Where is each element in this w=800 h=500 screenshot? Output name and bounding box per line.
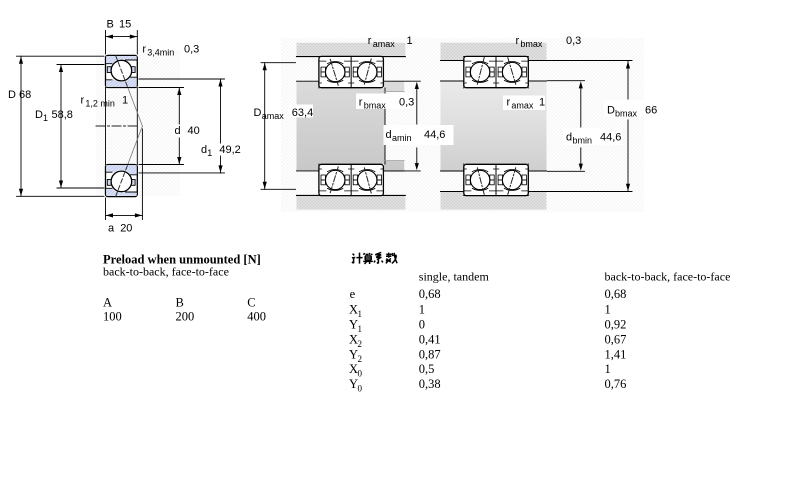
svg-text:amax: amax [373,39,396,49]
svg-text:r: r [368,35,372,47]
svg-text:58,8: 58,8 [52,109,73,121]
svg-text:D: D [35,109,43,121]
svg-text:0: 0 [358,369,363,379]
svg-text:63,4: 63,4 [292,107,313,119]
svg-text:bmin: bmin [573,136,593,146]
svg-text:0,3: 0,3 [399,97,414,109]
svg-text:C: C [247,296,255,310]
svg-text:r: r [516,35,520,47]
svg-text:1: 1 [207,148,212,158]
svg-text:r: r [507,97,511,109]
svg-text:a: a [108,223,115,235]
svg-text:1: 1 [539,97,545,109]
svg-text:3,4min: 3,4min [147,48,174,58]
svg-text:0: 0 [358,384,363,394]
svg-text:d: d [386,129,392,141]
svg-text:1,41: 1,41 [605,348,627,362]
svg-text:2: 2 [358,339,363,349]
svg-text:0,92: 0,92 [605,318,627,332]
svg-text:1: 1 [605,362,611,376]
svg-text:0,3: 0,3 [184,44,199,56]
svg-text:44,6: 44,6 [424,129,445,141]
svg-text:1: 1 [605,303,611,317]
svg-text:1: 1 [407,35,413,47]
svg-text:1: 1 [358,324,363,334]
svg-text:44,6: 44,6 [600,132,621,144]
svg-text:1: 1 [122,95,128,107]
svg-text:0,67: 0,67 [605,333,627,347]
svg-text:d: d [201,144,207,156]
svg-text:0,38: 0,38 [419,377,441,391]
svg-text:400: 400 [247,310,266,324]
svg-text:d: d [175,125,181,137]
svg-text:back-to-back, face-to-face: back-to-back, face-to-face [605,270,731,284]
svg-text:0,41: 0,41 [419,333,441,347]
svg-text:0,68: 0,68 [419,287,441,301]
svg-text:0: 0 [419,318,425,332]
svg-text:amax: amax [262,111,285,121]
svg-text:1,2 min: 1,2 min [85,99,115,109]
svg-text:20: 20 [120,223,132,235]
svg-text:49,2: 49,2 [219,144,240,156]
svg-text:0,76: 0,76 [605,377,627,391]
svg-text:r: r [359,97,363,109]
svg-text:40: 40 [188,125,200,137]
svg-text:0,68: 0,68 [605,287,627,301]
svg-text:single, tandem: single, tandem [419,270,490,284]
svg-text:r: r [142,44,146,56]
svg-text:bmax: bmax [364,101,387,111]
svg-text:back-to-back, face-to-face: back-to-back, face-to-face [103,265,229,279]
svg-text:0,3: 0,3 [566,35,581,47]
svg-text:amin: amin [392,133,412,143]
svg-text:B: B [107,19,114,31]
svg-text:200: 200 [176,310,195,324]
svg-text:B: B [176,296,184,310]
svg-text:100: 100 [103,310,122,324]
svg-text:1: 1 [419,303,425,317]
svg-text:D 68: D 68 [8,89,31,101]
svg-text:D: D [607,105,615,117]
svg-text:66: 66 [645,105,657,117]
svg-text:bmax: bmax [615,109,638,119]
svg-text:bmax: bmax [520,39,543,49]
svg-text:15: 15 [119,19,131,31]
svg-text:amax: amax [511,101,534,111]
svg-text:e: e [350,287,356,301]
svg-text:1: 1 [358,309,363,319]
svg-text:0,5: 0,5 [419,362,435,376]
svg-text:D: D [254,107,262,119]
svg-text:r: r [81,95,85,107]
svg-text:2: 2 [358,354,363,364]
svg-text:0,87: 0,87 [419,348,441,362]
svg-text:A: A [103,296,112,310]
svg-text:1: 1 [43,113,48,123]
svg-text:d: d [566,132,572,144]
